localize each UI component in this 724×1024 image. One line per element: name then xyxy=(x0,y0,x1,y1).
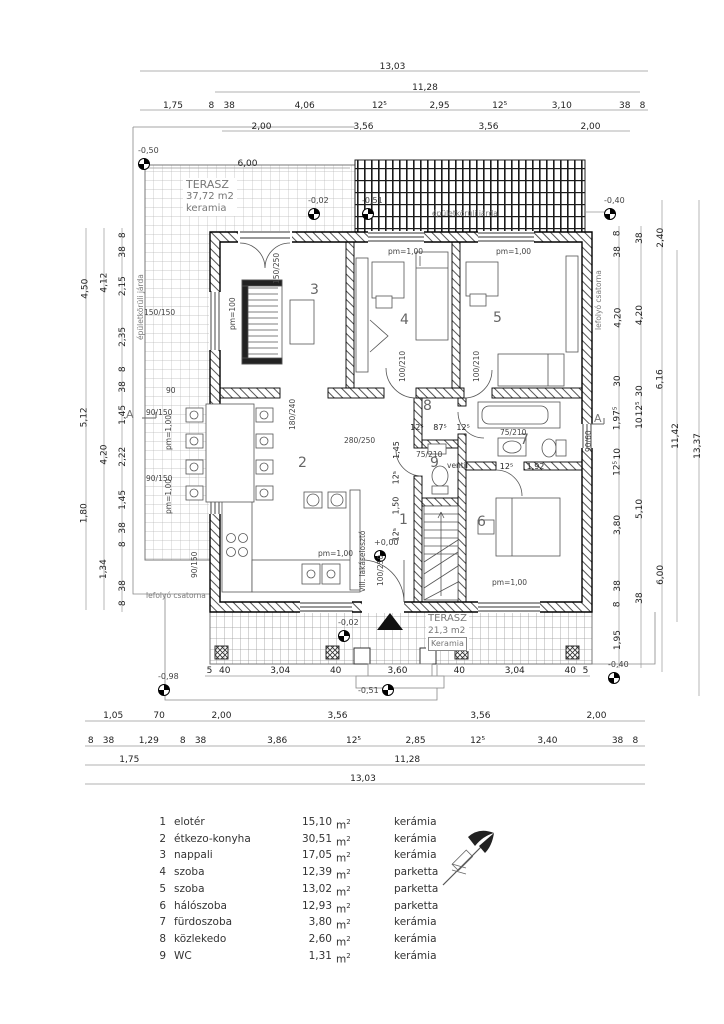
section-a-right: A xyxy=(594,412,602,425)
level-walkway-tl: -0,50 xyxy=(138,146,159,170)
level-walkway-bl: -0,98 xyxy=(158,672,179,696)
dim-label: 3,04 xyxy=(470,666,559,676)
legend-row: 3nappali 17,05m2 kerámia xyxy=(152,849,438,866)
dim-terrace-width: 6,00 xyxy=(145,159,350,169)
dim-label: 4,20 xyxy=(48,447,159,461)
room-1: 1 xyxy=(399,512,408,528)
dim-label: 13,03 xyxy=(85,774,641,784)
dim-label: 5 xyxy=(205,666,214,676)
dim-label: 8 xyxy=(116,538,130,552)
dim-label: 38 xyxy=(217,101,242,111)
room-4: 4 xyxy=(400,312,409,328)
dim-label: 40 xyxy=(325,666,347,676)
dim-label: 8 xyxy=(116,596,130,610)
parapet-dining-1: pm=1,00 xyxy=(164,415,173,450)
dim-label: 3,56 xyxy=(301,122,426,132)
dim-chain-wc: 12⁵87⁵12⁵ xyxy=(408,423,472,433)
door-size-terrace: 150/250 xyxy=(272,253,281,284)
legend-row: 1elotér 15,10m2 kerámia xyxy=(152,816,438,833)
dim-chain-top-inner: 11,28 xyxy=(215,83,635,93)
sofa xyxy=(242,280,282,364)
window-left-1: 90/150 xyxy=(146,408,172,417)
dim-chain-bottom-detail: 8381,298383,8612⁵2,8512⁵3,40388 xyxy=(85,736,641,746)
door-9: 75/210 xyxy=(416,450,442,459)
dim-label: 3,56 xyxy=(409,711,552,721)
dim-label: 3,56 xyxy=(426,122,551,132)
dim-90: 90 xyxy=(166,386,176,395)
door-7: 75/210 xyxy=(500,428,526,437)
dim-chain-bottom-axes: 1,05702,003,563,562,00 xyxy=(85,711,641,721)
dim-chain-bath: 12⁵1,92 xyxy=(497,462,555,472)
wardrobe-5 xyxy=(566,256,578,352)
dim-label: 38 xyxy=(113,245,133,259)
walkway-label-top: épületkörüli járda xyxy=(432,209,498,218)
room-3: 3 xyxy=(310,282,319,298)
parapet-dining-2: pm=1,00 xyxy=(164,479,173,514)
dim-label: 38 xyxy=(628,592,652,606)
dim-label: 38 xyxy=(96,736,120,746)
dim-label: 2,00 xyxy=(552,711,641,721)
dim-label: 11,28 xyxy=(174,755,641,765)
dim-label: 12⁵ xyxy=(388,472,403,484)
section-a-left: A xyxy=(126,408,134,421)
door-entry: 100/250 xyxy=(376,555,385,586)
dining-table xyxy=(206,404,254,502)
dim-chain-top-axes: 2,003,563,562,00 xyxy=(222,122,630,132)
level-walkway-br: -0,40 xyxy=(608,660,629,684)
dim-label: 1,80 xyxy=(58,506,113,520)
dim-label: 2,85 xyxy=(365,736,466,746)
dim-label: 3,04 xyxy=(236,666,325,676)
terrace-bottom xyxy=(210,612,592,688)
terrace-top-label: TERASZ 37,72 m2 keramia xyxy=(183,178,237,216)
north-arrow xyxy=(443,831,494,885)
terrace-bottom-label: TERASZ 21,3 m2 Keramia xyxy=(426,613,469,651)
kitchen-counter-left xyxy=(222,500,252,592)
legend-row: 7fürdoszoba 3,80m2 kerámia xyxy=(152,916,438,933)
dim-label: 12⁵ xyxy=(342,736,366,746)
dim-label: 2,95 xyxy=(391,101,488,111)
dim-label: 40 xyxy=(448,666,470,676)
window-left-2: 90/150 xyxy=(146,474,172,483)
window-left-3: 90/150 xyxy=(190,552,199,578)
bed-5 xyxy=(498,354,564,386)
dim-label: 38 xyxy=(113,380,133,394)
level-terrace-top-a: -0,02 xyxy=(308,196,329,220)
dim-label: 1,92 xyxy=(516,462,555,472)
parapet-kitchen: pm=1,00 xyxy=(318,549,353,558)
dim-label: 4,06 xyxy=(241,101,367,111)
dim-label: 38 xyxy=(605,736,629,746)
room-legend: 1elotér 15,10m2 kerámia 2étkezo-konyha 3… xyxy=(152,816,438,966)
dim-label: 87⁵ xyxy=(426,423,455,433)
dim-label: 12⁵ xyxy=(368,101,391,111)
dim-chain-top-detail: 1,758384,0612⁵2,9512⁵3,10388 xyxy=(140,101,648,111)
dim-chain-bottom-total: 13,03 xyxy=(85,774,641,784)
dim-label: 4,50 xyxy=(24,282,145,296)
room-8: 8 xyxy=(423,398,432,414)
parapet-5: pm=1,00 xyxy=(496,247,531,256)
desk-5 xyxy=(466,262,498,296)
dim-label: 2,00 xyxy=(222,122,301,132)
wardrobe-3 xyxy=(356,258,368,372)
legend-row: 5szoba 13,02m2 parketta xyxy=(152,883,438,900)
level-terrace-top-b: -0,51 xyxy=(362,196,383,220)
dim-label: 8 xyxy=(611,597,626,611)
dim-label: 1,50 xyxy=(375,500,416,512)
dim-label: 8 xyxy=(177,736,188,746)
floor-plan: 13,03 11,28 1,758384,0612⁵2,9512⁵3,10388… xyxy=(0,0,724,1024)
dim-label: 13,03 xyxy=(140,62,645,72)
dim-label: 12⁵ xyxy=(497,462,516,472)
opening-hall: 280/250 xyxy=(344,436,375,445)
dim-label: 40 xyxy=(214,666,236,676)
dim-label: 8 xyxy=(116,228,130,242)
window-left-top: 150/150 xyxy=(144,308,175,317)
dim-label: 1,75 xyxy=(140,101,206,111)
dim-label: 8 xyxy=(637,101,648,111)
dim-label: 12⁵ xyxy=(632,401,648,415)
legend-row: 9WC 1,31m2 kerámia xyxy=(152,950,438,967)
dim-chain-right-4: 11,42 xyxy=(669,250,683,622)
dim-chain-top-total: 13,03 xyxy=(140,62,645,72)
dim-label: 38 xyxy=(612,101,637,111)
opening-dining: 180/240 xyxy=(288,399,297,430)
dim-chain-bottom-terrace: 5403,04403,60403,04405 xyxy=(205,666,590,676)
dist-board-label: vill. lakáselosztó xyxy=(358,530,367,592)
dim-label: 38 xyxy=(607,245,629,259)
dim-label: 12⁵ xyxy=(466,736,490,746)
parapet-4: pm=1,00 xyxy=(388,247,423,256)
dim-label: 40 xyxy=(559,666,581,676)
door-4: 100/210 xyxy=(398,351,407,382)
level-terrace-bot-a: -0,02 xyxy=(338,618,359,642)
dim-label: 3,60 xyxy=(347,666,449,676)
dim-label xyxy=(50,568,119,582)
room-6: 6 xyxy=(477,514,486,530)
drain-label-right: lefolyó csatorna xyxy=(594,270,603,330)
parapet-6: pm=1,00 xyxy=(492,578,527,587)
parapet-3: pm=100 xyxy=(228,297,237,330)
dim-label: 3,80 xyxy=(568,518,668,532)
dim-label: 8 xyxy=(206,101,217,111)
legend-row: 2étkezo-konyha 30,51m2 kerámia xyxy=(152,833,438,850)
dim-label: 6,00 xyxy=(145,159,350,169)
legend-row: 8közlekedo 2,60m2 kerámia xyxy=(152,933,438,950)
dim-label: 2,00 xyxy=(177,711,266,721)
room-2: 2 xyxy=(298,455,307,471)
bed-4 xyxy=(416,252,448,340)
legend-row: 4szoba 12,39m2 parketta xyxy=(152,866,438,883)
dim-label: 12⁵ xyxy=(611,461,626,475)
dim-chain-right-total: 13,37 xyxy=(691,196,705,696)
ventil-label: ventil xyxy=(447,461,468,470)
dim-chain-bottom-inner: 1,7511,28 xyxy=(85,755,641,765)
dim-label: 3,10 xyxy=(511,101,612,111)
bed-6 xyxy=(496,498,560,556)
window-bath: 90/60 xyxy=(584,430,593,452)
level-terrace-bot-b: -0,51 xyxy=(358,684,394,696)
dim-label: 1,29 xyxy=(121,736,178,746)
dim-chain-left-outer: 4,505,121,80 xyxy=(78,228,92,610)
dim-label: 12⁵ xyxy=(454,423,472,433)
door-5: 100/210 xyxy=(472,351,481,382)
dim-label: 38 xyxy=(188,736,212,746)
dim-label: 3,56 xyxy=(266,711,409,721)
dim-label: 1,75 xyxy=(85,755,174,765)
dim-label: 11,28 xyxy=(215,83,635,93)
dim-label: 12⁵ xyxy=(488,101,511,111)
dim-label: 1,05 xyxy=(85,711,141,721)
desk-4 xyxy=(372,262,404,298)
dim-label: 8 xyxy=(630,736,641,746)
stairs xyxy=(424,506,458,600)
dim-label: 3,40 xyxy=(489,736,605,746)
dim-label: 70 xyxy=(141,711,177,721)
pergola-grid xyxy=(355,160,585,235)
dim-label xyxy=(94,593,113,607)
legend-row: 6hálószoba 12,93m2 parketta xyxy=(152,900,438,917)
level-walkway-tr: -0,40 xyxy=(604,196,625,220)
dim-label: 2,00 xyxy=(551,122,630,132)
dim-label: 1,45 xyxy=(376,444,416,456)
drain-label-bottom: lefolyó csatorna xyxy=(146,591,206,600)
dim-label: 12⁵ xyxy=(408,423,426,433)
room-5: 5 xyxy=(493,310,502,326)
dim-label: 3,86 xyxy=(213,736,342,746)
coffee-table xyxy=(290,300,314,344)
dim-label: 8 xyxy=(85,736,96,746)
dim-label: 5 xyxy=(581,666,590,676)
